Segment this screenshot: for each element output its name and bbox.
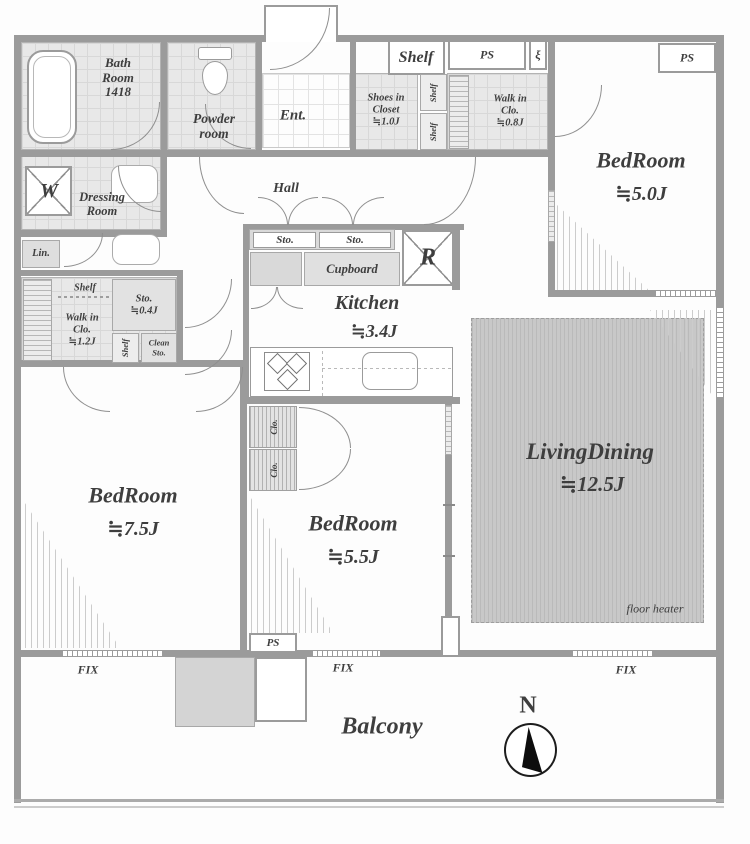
living-entry-door-arc bbox=[424, 157, 476, 225]
ps-label: PS bbox=[680, 51, 694, 64]
closet-label-vertical: Clo. bbox=[269, 462, 279, 477]
shelf-label-vertical: Shelf bbox=[429, 84, 439, 102]
door-arc bbox=[64, 233, 103, 267]
bedroom-w-door-arc bbox=[196, 367, 243, 412]
wall bbox=[243, 397, 460, 404]
closet-door-arc bbox=[299, 449, 351, 490]
ps-label: PS bbox=[267, 637, 280, 649]
kitchen-size: ≒3.4J bbox=[351, 321, 398, 341]
hall-double-door-arc bbox=[322, 197, 353, 225]
door-arc bbox=[185, 279, 232, 328]
window-bedroom-ne bbox=[655, 290, 716, 297]
shoes-closet-label: Shoes in Closet ≒1.0J bbox=[367, 92, 404, 127]
pillar bbox=[441, 616, 460, 657]
hall-label: Hall bbox=[273, 181, 299, 197]
bedroom-s-name: BedRoom bbox=[308, 512, 397, 537]
storage-label: Sto. bbox=[276, 234, 293, 246]
dressing-room-label: Dressing Room bbox=[79, 190, 125, 218]
window-fix-right bbox=[572, 650, 652, 657]
wall bbox=[350, 150, 555, 157]
living-size: ≒12.5J bbox=[560, 473, 625, 497]
living-name: LivingDining bbox=[526, 439, 654, 465]
floor-heater-area bbox=[471, 318, 704, 623]
wall bbox=[177, 270, 183, 367]
shelf-label: Shelf bbox=[74, 282, 96, 293]
linen-label: Lin. bbox=[32, 248, 50, 260]
wall-hatch bbox=[548, 190, 555, 242]
kitchen-name: Kitchen bbox=[335, 292, 399, 314]
wall-bedroom-ne-bottom bbox=[548, 290, 657, 297]
wall bbox=[548, 40, 555, 297]
balcony-utility-box bbox=[175, 657, 255, 727]
ps-label: PS bbox=[480, 48, 494, 61]
wall bbox=[240, 360, 247, 657]
counter-back-box bbox=[250, 252, 302, 286]
balcony-edge-line bbox=[14, 799, 724, 802]
floor-heater-label: floor heater bbox=[627, 602, 684, 615]
fridge-label: R bbox=[420, 245, 436, 272]
wall-outer-top bbox=[14, 35, 724, 42]
compass-north-label: N bbox=[519, 693, 536, 720]
sink bbox=[362, 352, 418, 390]
hall-double-door-arc bbox=[353, 197, 384, 225]
powder-room-label: Powder room bbox=[193, 111, 235, 141]
fix-label-right: FIX bbox=[616, 663, 637, 676]
window-fix-left bbox=[62, 650, 162, 657]
bedroom-ne-name: BedRoom bbox=[596, 149, 685, 174]
floor-plan: W Shelf PS ξ Shoes in Closet ≒1.0J Shelf… bbox=[0, 0, 750, 844]
bath-room-label: Bath Room 1418 bbox=[102, 56, 134, 100]
basin bbox=[112, 234, 160, 265]
mini-door-arc bbox=[251, 287, 277, 309]
bedroom-s-size: ≒5.5J bbox=[327, 546, 379, 568]
wall bbox=[161, 42, 167, 152]
cupboard-label: Cupboard bbox=[326, 262, 377, 276]
wall bbox=[350, 42, 356, 152]
storage-small-label: Sto. ≒0.4J bbox=[130, 293, 157, 317]
closet-door-arc bbox=[299, 407, 351, 448]
wall-outer-right bbox=[716, 35, 724, 803]
bedroom-ne-door-arc bbox=[555, 85, 602, 137]
wall-stop-mark bbox=[443, 504, 455, 506]
closet-hatch bbox=[23, 279, 52, 361]
wall bbox=[243, 228, 249, 404]
counter-dash-line bbox=[322, 368, 453, 369]
corner-hatch bbox=[557, 205, 652, 293]
toilet-tank bbox=[198, 47, 232, 60]
wall bbox=[14, 270, 183, 276]
mini-door-arc bbox=[277, 287, 303, 309]
hall-double-door-arc bbox=[288, 197, 318, 225]
washer-label: W bbox=[40, 180, 58, 202]
entrance-label: Ent. bbox=[280, 108, 306, 125]
wall-stop-mark bbox=[443, 555, 455, 557]
wall bbox=[14, 150, 350, 157]
corner-hatch bbox=[25, 503, 120, 648]
bedroom-w-size: ≒7.5J bbox=[107, 518, 159, 540]
wall-hatch bbox=[445, 405, 452, 455]
walkin-closet-w-label: Walk in Clo. ≒1.2J bbox=[65, 312, 98, 347]
shelf-dash-line bbox=[58, 296, 114, 298]
fix-label-mid: FIX bbox=[333, 661, 354, 674]
storage-label: Sto. bbox=[346, 234, 363, 246]
shelf-label: Shelf bbox=[399, 49, 434, 67]
shelf-label-vertical: Shelf bbox=[121, 339, 131, 357]
meter-symbol: ξ bbox=[535, 48, 540, 61]
balcony-shaft-box bbox=[255, 657, 307, 722]
hall-door-arc bbox=[199, 157, 244, 214]
balcony-label: Balcony bbox=[341, 714, 422, 741]
shelf-label-vertical: Shelf bbox=[429, 123, 439, 141]
hall-double-door-arc bbox=[258, 197, 288, 225]
window-living-right bbox=[716, 308, 724, 398]
balcony-edge-line bbox=[14, 806, 724, 808]
bedroom-ne-size: ≒5.0J bbox=[615, 183, 667, 205]
bedroom-w-name: BedRoom bbox=[88, 484, 177, 509]
bathtub-inner bbox=[33, 56, 71, 138]
wall bbox=[256, 42, 262, 152]
counter-dash-line bbox=[322, 348, 323, 396]
closet-label-vertical: Clo. bbox=[269, 419, 279, 434]
front-door-arc bbox=[270, 8, 330, 70]
walkin-closet-ne-label: Walk in Clo. ≒0.8J bbox=[493, 93, 526, 128]
walkin-ne-hatch bbox=[449, 75, 469, 149]
window-fix-mid bbox=[312, 650, 380, 657]
wall bbox=[161, 153, 167, 237]
fix-label-left: FIX bbox=[78, 663, 99, 676]
clean-storage-label: Clean Sto. bbox=[149, 338, 170, 357]
bedroom-w-door-arc bbox=[63, 367, 110, 412]
